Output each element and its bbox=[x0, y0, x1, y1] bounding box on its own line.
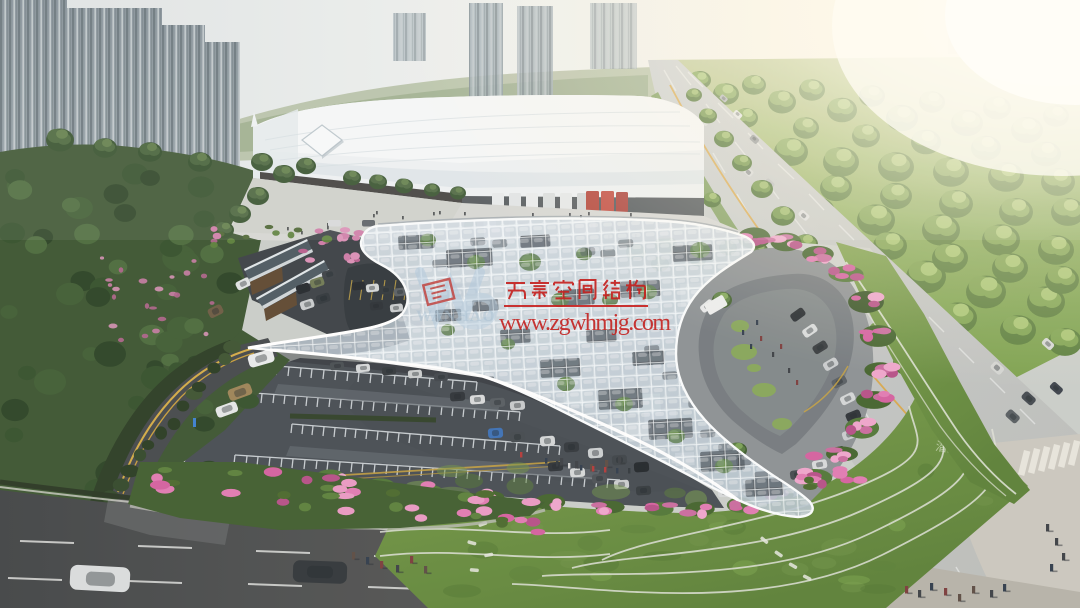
svg-text:www.zgwhmjg.com: www.zgwhmjg.com bbox=[499, 310, 671, 336]
svg-text:WANHAO: WANHAO bbox=[416, 308, 496, 325]
